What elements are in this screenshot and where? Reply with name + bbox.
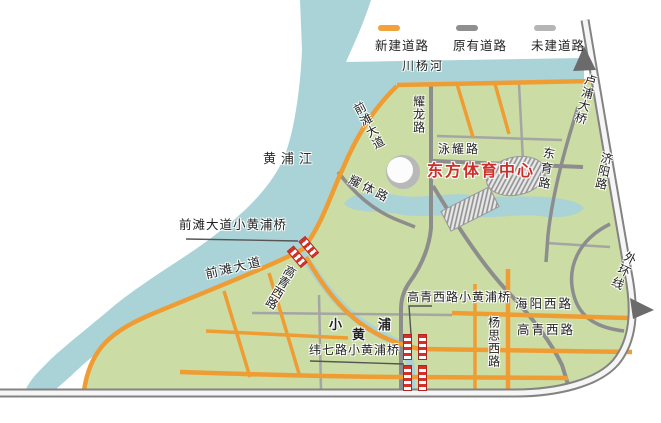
chuanyang-river-label: 川杨河: [402, 60, 444, 73]
haiyang-west-road-label: 海阳西路: [515, 298, 573, 311]
xiao-huangpu-char: 黄: [352, 324, 365, 343]
xiao-huangpu-char: 小: [329, 314, 342, 333]
xiao-huangpu-char: 浦: [378, 314, 391, 333]
map-graphics: [0, 0, 661, 423]
outer-ring-arrow: [630, 298, 654, 319]
future-road-swatch: [534, 25, 556, 31]
existing-road-swatch: [456, 25, 478, 31]
qiantan-bridge-label: 前滩大道小黄浦桥: [179, 219, 287, 232]
weiqi-bridge-label: 纬七路小黄浦桥: [309, 344, 400, 357]
dome-building-top: [387, 157, 413, 183]
yaolong-road-label: 耀龙路: [412, 95, 425, 134]
bridge-bar: [418, 365, 427, 391]
bridge-bar: [418, 334, 427, 360]
gaoqing-west-road-label: 高青西路: [517, 324, 575, 337]
yangsi-west-road-label: 杨思西路: [487, 316, 500, 368]
legend-label: 未建道路: [531, 35, 585, 54]
legend: 新建道路 原有道路 未建道路: [375, 25, 585, 54]
sports-center-label: 东方体育中心: [427, 164, 535, 181]
gaoqing-bridge-icon: [403, 334, 427, 360]
legend-item-new-road: 新建道路: [375, 25, 429, 54]
legend-item-future-road: 未建道路: [531, 25, 585, 54]
bridge-bar: [403, 334, 412, 360]
weiqi-bridge-icon: [403, 365, 427, 391]
yongyao-road-label: 泳耀路: [438, 143, 480, 156]
map-canvas: 新建道路 原有道路 未建道路 川杨河 黄浦江 小 黄 浦 东方体育中心 前滩大道…: [0, 0, 661, 423]
legend-label: 新建道路: [375, 35, 429, 54]
legend-label: 原有道路: [453, 35, 507, 54]
bridge-bar: [403, 365, 412, 391]
new-road-swatch: [378, 25, 400, 31]
gaoqing-bridge-label: 高青西路小黄浦桥: [407, 291, 511, 304]
legend-item-existing-road: 原有道路: [453, 25, 507, 54]
huangpu-river-label: 黄浦江: [263, 152, 317, 166]
